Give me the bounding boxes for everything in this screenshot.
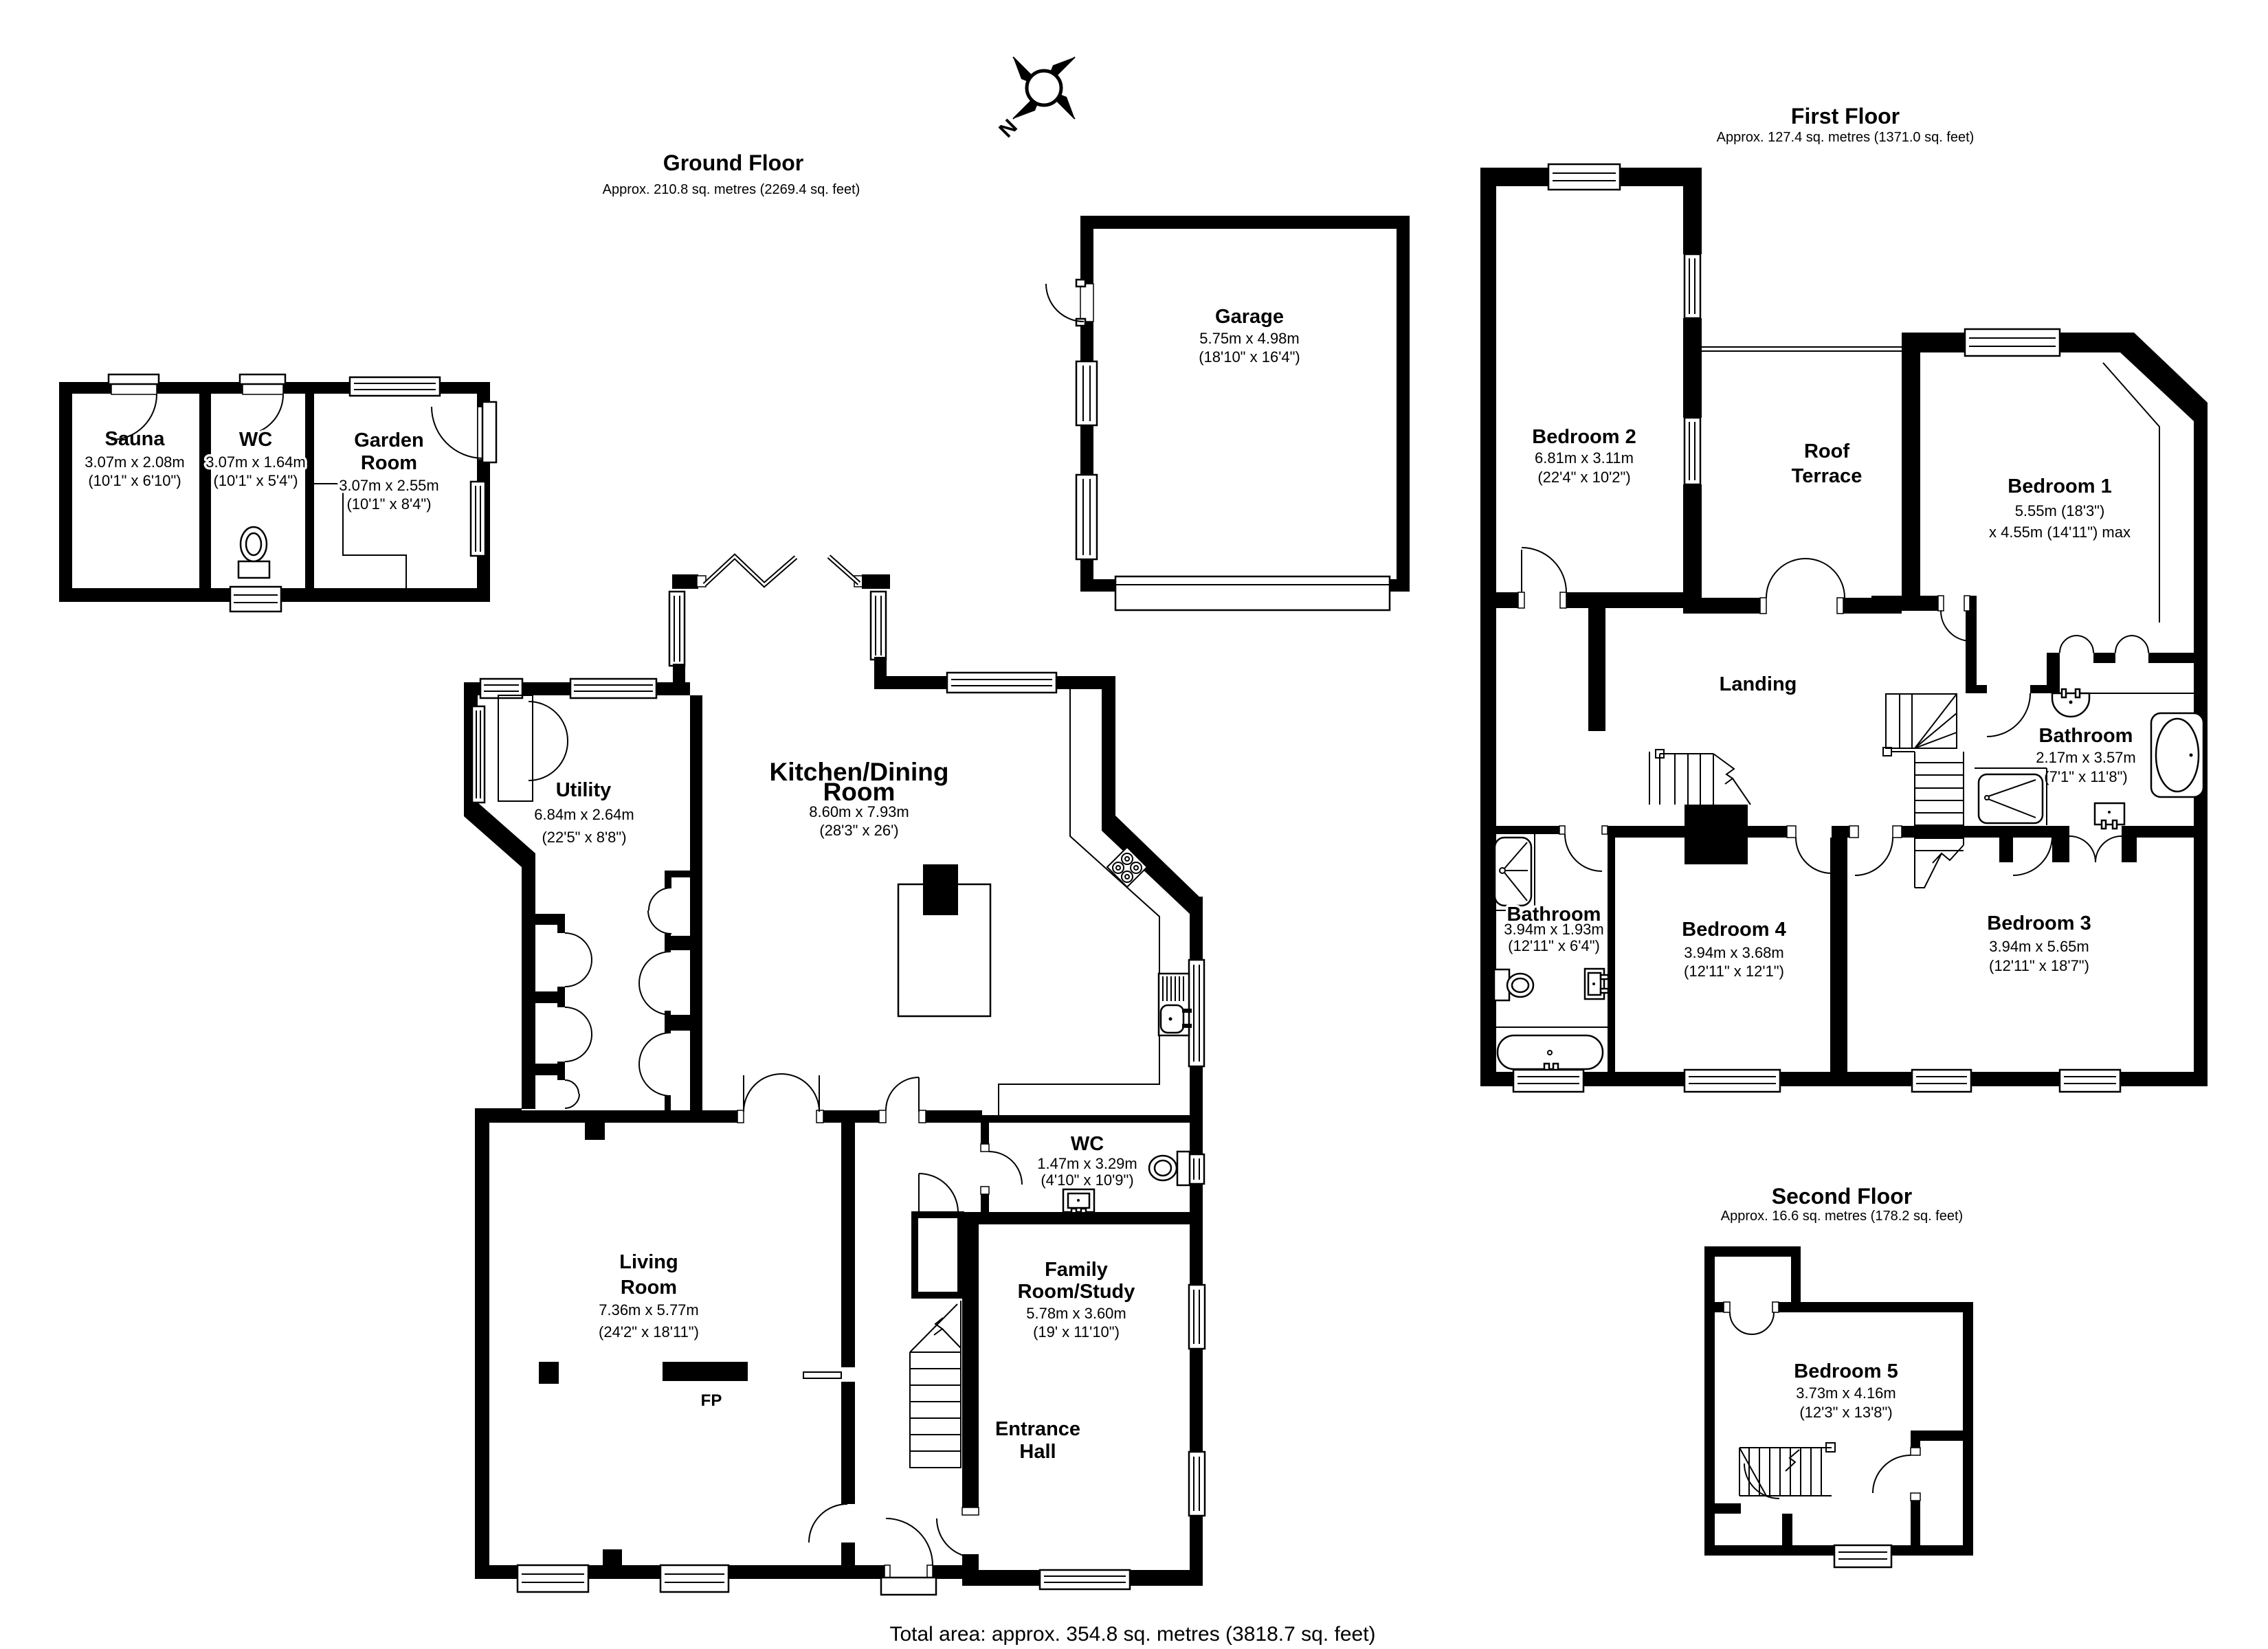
svg-text:Landing: Landing xyxy=(1720,673,1797,695)
svg-text:5.55m (18'3"): 5.55m (18'3") xyxy=(2015,502,2105,519)
svg-text:Roof: Roof xyxy=(1804,440,1849,462)
svg-text:WC: WC xyxy=(1071,1133,1104,1155)
svg-text:Living: Living xyxy=(619,1251,678,1273)
svg-text:7.36m x 5.77m: 7.36m x 5.77m xyxy=(599,1301,699,1319)
svg-text:5.75m x 4.98m: 5.75m x 4.98m xyxy=(1199,330,1300,347)
svg-text:(10'1" x 8'4"): (10'1" x 8'4") xyxy=(346,495,431,513)
svg-text:(28'3" x 26'): (28'3" x 26') xyxy=(819,822,898,839)
svg-text:Room: Room xyxy=(621,1277,677,1299)
svg-text:(10'1" x 5'4"): (10'1" x 5'4") xyxy=(213,472,298,489)
svg-text:(22'4" x 10'2"): (22'4" x 10'2") xyxy=(1537,469,1630,486)
svg-text:(18'10" x 16'4"): (18'10" x 16'4") xyxy=(1199,348,1300,366)
svg-text:Room: Room xyxy=(823,778,896,806)
svg-text:(4'10" x 10'9"): (4'10" x 10'9") xyxy=(1041,1171,1133,1189)
svg-text:Utility: Utility xyxy=(556,779,612,801)
svg-text:(7'1" x 11'8"): (7'1" x 11'8") xyxy=(2044,768,2127,785)
svg-text:(10'1" x 6'10"): (10'1" x 6'10") xyxy=(88,472,181,489)
svg-text:1.47m x 3.29m: 1.47m x 3.29m xyxy=(1037,1155,1137,1172)
svg-text:Approx. 210.8 sq. metres (2269: Approx. 210.8 sq. metres (2269.4 sq. fee… xyxy=(603,182,860,197)
svg-text:3.94m x 1.93m: 3.94m x 1.93m xyxy=(1504,921,1604,938)
svg-text:Garage: Garage xyxy=(1215,306,1284,328)
svg-text:(19' x 11'10"): (19' x 11'10") xyxy=(1033,1323,1120,1340)
svg-text:Room/Study: Room/Study xyxy=(1018,1281,1135,1303)
svg-text:Bedroom 5: Bedroom 5 xyxy=(1794,1360,1898,1382)
svg-text:3.07m x 1.64m: 3.07m x 1.64m xyxy=(205,453,306,471)
svg-text:3.07m x 2.08m: 3.07m x 2.08m xyxy=(85,453,185,471)
svg-text:Room: Room xyxy=(361,452,417,474)
svg-text:Approx. 127.4 sq. metres (1371: Approx. 127.4 sq. metres (1371.0 sq. fee… xyxy=(1717,130,1975,145)
svg-text:WC: WC xyxy=(239,429,272,451)
svg-text:6.81m x 3.11m: 6.81m x 3.11m xyxy=(1535,449,1634,467)
svg-text:Entrance: Entrance xyxy=(995,1418,1080,1440)
svg-text:Bedroom 2: Bedroom 2 xyxy=(1532,426,1636,448)
svg-text:3.73m x 4.16m: 3.73m x 4.16m xyxy=(1796,1384,1896,1402)
svg-text:First Floor: First Floor xyxy=(1791,104,1900,128)
svg-text:Bedroom 4: Bedroom 4 xyxy=(1682,919,1786,941)
svg-text:3.94m x 3.68m: 3.94m x 3.68m xyxy=(1684,944,1784,961)
svg-text:(24'2" x 18'11"): (24'2" x 18'11") xyxy=(599,1323,699,1340)
svg-text:(12'11" x 12'1"): (12'11" x 12'1") xyxy=(1684,963,1784,980)
svg-text:Approx. 16.6 sq. metres (178.2: Approx. 16.6 sq. metres (178.2 sq. feet) xyxy=(1721,1209,1963,1224)
svg-text:Second Floor: Second Floor xyxy=(1772,1184,1912,1209)
svg-text:8.60m x 7.93m: 8.60m x 7.93m xyxy=(809,803,909,820)
svg-text:(12'11" x 18'7"): (12'11" x 18'7") xyxy=(1989,957,2089,974)
svg-text:FP: FP xyxy=(701,1391,722,1410)
svg-text:6.84m x 2.64m: 6.84m x 2.64m xyxy=(534,806,634,823)
svg-text:(12'3" x 13'8"): (12'3" x 13'8") xyxy=(1799,1404,1892,1421)
svg-text:Terrace: Terrace xyxy=(1792,465,1863,487)
svg-text:Hall: Hall xyxy=(1019,1441,1056,1463)
svg-text:Ground Floor: Ground Floor xyxy=(663,150,803,175)
svg-text:Bedroom 3: Bedroom 3 xyxy=(1987,912,2091,934)
svg-text:Total area: approx. 354.8 sq.: Total area: approx. 354.8 sq. metres (38… xyxy=(889,1623,1375,1646)
svg-text:Garden: Garden xyxy=(354,429,424,451)
svg-text:(22'5" x 8'8"): (22'5" x 8'8") xyxy=(542,829,626,846)
svg-text:3.07m x 2.55m: 3.07m x 2.55m xyxy=(339,477,439,494)
svg-text:(12'11" x 6'4"): (12'11" x 6'4") xyxy=(1508,937,1600,954)
svg-text:Family: Family xyxy=(1045,1259,1108,1281)
svg-text:2.17m x 3.57m: 2.17m x 3.57m xyxy=(2036,749,2136,766)
svg-text:3.94m x 5.65m: 3.94m x 5.65m xyxy=(1989,938,2089,955)
svg-text:Bathroom: Bathroom xyxy=(2039,725,2133,747)
svg-text:5.78m x 3.60m: 5.78m x 3.60m xyxy=(1026,1305,1126,1322)
svg-text:Bedroom 1: Bedroom 1 xyxy=(2008,475,2111,497)
svg-text:x 4.55m (14'11") max: x 4.55m (14'11") max xyxy=(1989,524,2131,541)
